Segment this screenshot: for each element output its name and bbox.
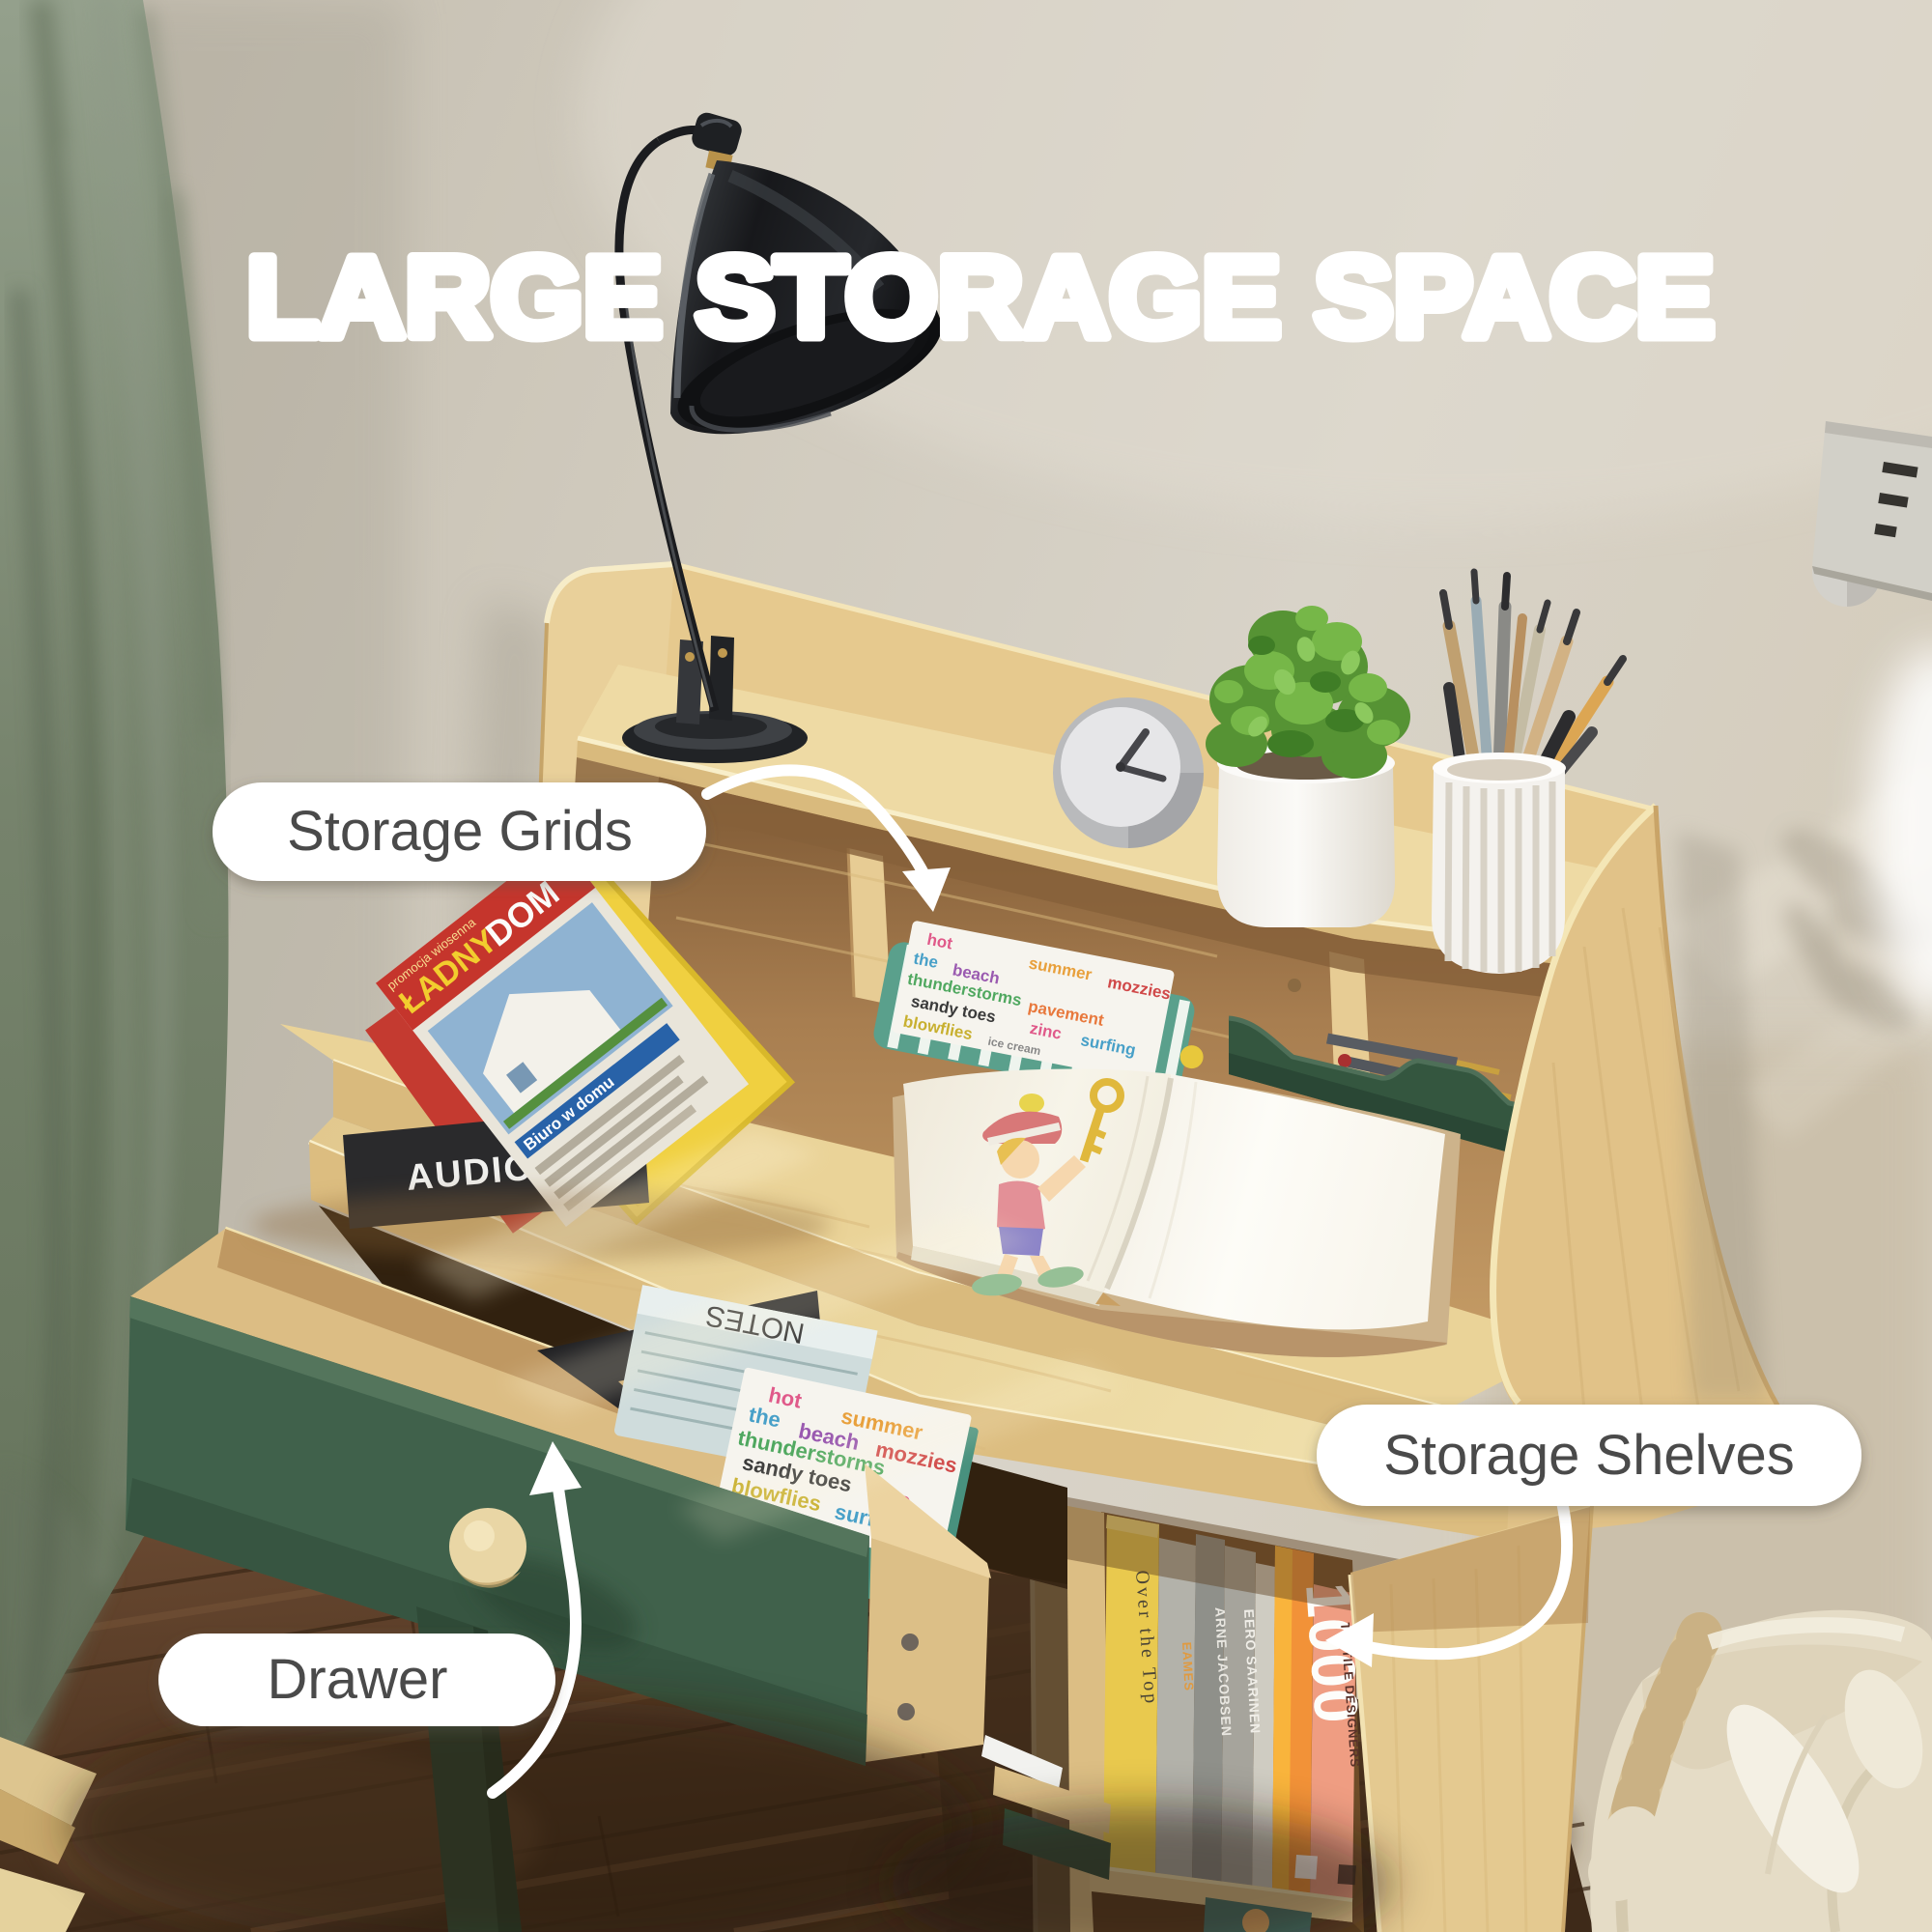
svg-text:EAMES: EAMES [1179, 1641, 1197, 1691]
svg-text:Storage Shelves: Storage Shelves [1383, 1424, 1795, 1487]
svg-text:Drawer: Drawer [268, 1648, 448, 1711]
svg-text:Storage Grids: Storage Grids [287, 800, 633, 863]
svg-text:LARGE STORAGE SPACE: LARGE STORAGE SPACE [246, 234, 1715, 361]
